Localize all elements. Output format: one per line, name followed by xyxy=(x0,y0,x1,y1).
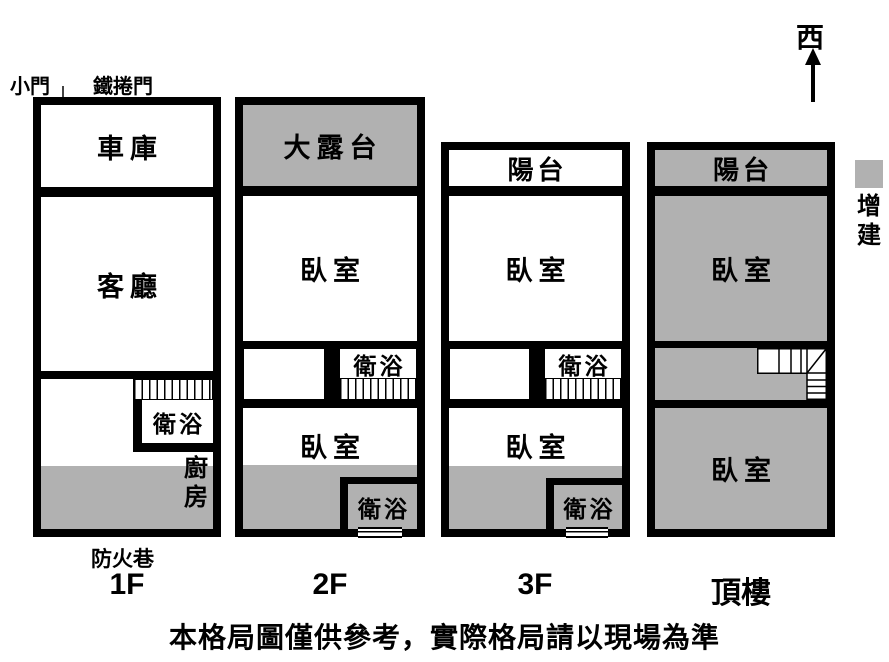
room-bedroom-rear-2f-label: 臥室 xyxy=(294,426,366,465)
room-bedroom-front-roof: 臥室 xyxy=(655,196,827,341)
wall xyxy=(449,186,622,196)
window-icon xyxy=(566,527,608,538)
room-living: 客廳 xyxy=(41,197,213,371)
room-bathroom-mid-3f-label: 衛浴 xyxy=(556,347,611,381)
unit-roof: 陽台 臥室 臥室 xyxy=(647,142,835,537)
west-arrow-icon xyxy=(801,48,825,104)
unit-1f: 車庫 客廳 衛浴 廚房 xyxy=(33,97,221,537)
floor-label-roof: 頂樓 xyxy=(686,568,796,612)
room-kitchen-label: 廚房 xyxy=(181,454,211,513)
disclaimer-text: 本格局圖僅供參考，實際格局請以現場為準 xyxy=(0,616,889,656)
unit-2f: 大露台 臥室 衛浴 臥室 衛浴 xyxy=(235,97,425,537)
wall xyxy=(655,341,827,348)
room-bedroom-rear-2f: 臥室 xyxy=(243,423,417,468)
room-bedroom-rear-roof: 臥室 xyxy=(655,408,827,529)
room-bathroom-1f: 衛浴 xyxy=(142,400,213,443)
room-bedroom-front-2f: 臥室 xyxy=(243,196,417,341)
room-living-label: 客廳 xyxy=(91,265,163,304)
floor-label-1f: 1F xyxy=(72,568,182,602)
room-bedroom-front-2f-label: 臥室 xyxy=(294,249,366,288)
room-balcony-roof-label: 陽台 xyxy=(709,150,773,187)
room-bathroom-rear-3f-label: 衛浴 xyxy=(561,490,616,524)
room-garage-label: 車庫 xyxy=(91,127,163,166)
room-terrace: 大露台 xyxy=(243,105,417,186)
room-bedroom-front-3f-label: 臥室 xyxy=(500,249,572,288)
utility-room xyxy=(243,348,325,400)
room-bedroom-rear-roof-label: 臥室 xyxy=(705,449,777,488)
roller-door-label: 鐵捲門 xyxy=(93,70,153,99)
room-bathroom-mid-3f: 衛浴 xyxy=(544,348,622,379)
room-terrace-label: 大露台 xyxy=(278,126,383,165)
wall xyxy=(325,348,339,400)
floor-label-3f: 3F xyxy=(480,568,590,602)
wall xyxy=(530,348,544,400)
room-bathroom-mid-2f-label: 衛浴 xyxy=(351,347,406,381)
wall xyxy=(243,186,417,196)
room-bathroom-rear-3f: 衛浴 xyxy=(546,478,622,529)
stairs-icon xyxy=(133,379,213,400)
floorplan-canvas: 小門 鐵捲門 西 增建 車庫 客廳 衛浴 廚房 大露台 臥室 xyxy=(0,0,889,662)
room-bathroom-1f-label: 衛浴 xyxy=(150,405,205,439)
room-balcony-roof: 陽台 xyxy=(655,150,827,186)
room-bathroom-mid-2f: 衛浴 xyxy=(339,348,417,379)
wall xyxy=(655,400,827,408)
room-bedroom-front-3f: 臥室 xyxy=(449,196,622,341)
room-bedroom-front-roof-label: 臥室 xyxy=(705,249,777,288)
room-garage: 車庫 xyxy=(41,105,213,187)
addition-legend-label: 增建 xyxy=(854,192,884,251)
wall xyxy=(243,400,417,408)
wall xyxy=(655,186,827,196)
addition-legend-swatch xyxy=(855,160,883,188)
room-bathroom-rear-2f: 衛浴 xyxy=(340,477,417,529)
room-bedroom-rear-3f-label: 臥室 xyxy=(500,426,572,465)
room-bathroom-rear-2f-label: 衛浴 xyxy=(355,490,410,524)
stairs-icon xyxy=(339,378,417,400)
stairs-icon xyxy=(544,378,622,400)
room-bedroom-rear-3f: 臥室 xyxy=(449,423,622,468)
utility-room xyxy=(449,348,530,400)
l-shaped-stairs-icon xyxy=(757,348,827,400)
wall xyxy=(133,443,213,452)
room-balcony-3f-label: 陽台 xyxy=(503,150,567,187)
wall xyxy=(449,400,622,408)
wall xyxy=(41,187,213,197)
small-door-label: 小門 xyxy=(10,70,50,99)
wall xyxy=(41,371,213,379)
unit-3f: 陽台 臥室 衛浴 臥室 衛浴 xyxy=(441,142,630,537)
window-icon xyxy=(358,527,402,538)
floor-label-2f: 2F xyxy=(275,568,385,602)
room-balcony-3f: 陽台 xyxy=(449,150,622,186)
